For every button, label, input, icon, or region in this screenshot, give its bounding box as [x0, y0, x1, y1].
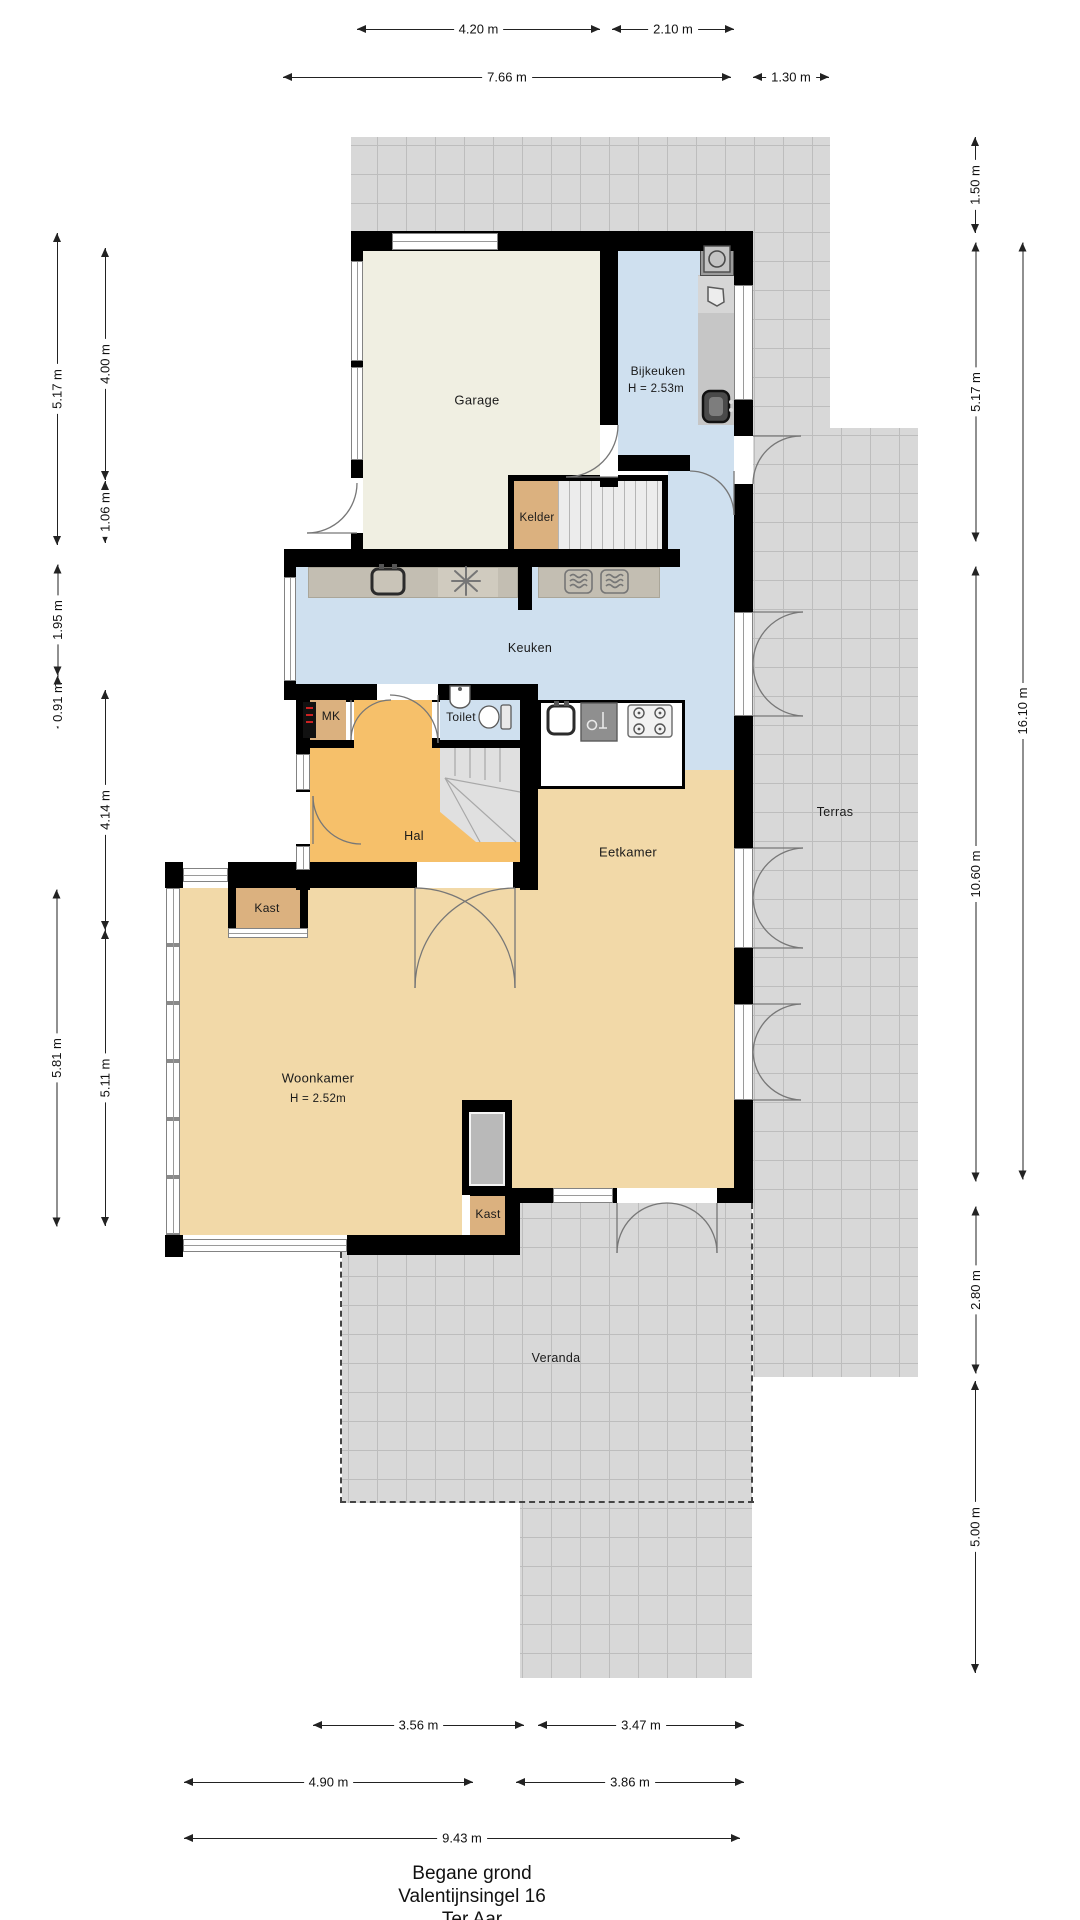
garden-tiles-bottom	[520, 1503, 752, 1678]
room-eetkamer	[538, 770, 734, 1188]
dim-left-5-17: 5.17 m	[49, 233, 65, 545]
bijkeuken-window-right	[734, 285, 753, 400]
wall-corner-topleft	[165, 862, 183, 888]
keuken-window-left	[284, 577, 296, 681]
veranda-door-opening	[617, 1188, 717, 1203]
dim-top-7-66: 7.66 m	[283, 69, 731, 85]
dim-bottom-4-90: 4.90 m	[184, 1774, 473, 1790]
room-label-eetkamer: Eetkamer	[599, 845, 657, 860]
fireplace-insert	[469, 1112, 505, 1186]
room-label-hal: Hal	[404, 829, 424, 843]
garage-window-top	[392, 233, 498, 250]
woonkamer-window-left	[166, 888, 180, 1235]
plan-title-address: Valentijnsingel 16	[262, 1885, 682, 1908]
hal-window-left-1	[296, 754, 310, 790]
room-label-kast-hal: Kast	[254, 901, 279, 915]
room-keuken-passage	[668, 455, 734, 698]
room-label-terras: Terras	[817, 805, 854, 819]
dim-left-0-91: 0.91 m	[50, 676, 66, 729]
dim-right-2-80: 2.80 m	[968, 1207, 984, 1374]
room-eetkamer-strip	[520, 890, 538, 1188]
room-note-woonkamer-height: H = 2.52m	[290, 1093, 346, 1105]
garage-bijkeuken-door-opening	[600, 425, 618, 477]
dim-left-5-11: 5.11 m	[97, 930, 113, 1226]
mk-door-opening	[346, 702, 354, 740]
kast-louvre-window	[228, 928, 308, 938]
room-label-mk: MK	[322, 709, 341, 723]
wall-bijkeuken-bottom	[618, 455, 690, 471]
hal-woonkamer-door-opening	[417, 862, 513, 888]
room-label-bijkeuken: Bijkeuken	[631, 364, 686, 378]
room-label-veranda: Veranda	[532, 1351, 581, 1365]
veranda-dashed-border-right	[751, 1203, 755, 1503]
veranda-dashed-border-bottom	[340, 1501, 754, 1505]
veranda-tiles-left	[342, 1252, 520, 1503]
dim-right-5-17: 5.17 m	[968, 243, 984, 542]
room-label-kast-woonkamer: Kast	[475, 1207, 500, 1221]
garage-window-left-1	[351, 261, 363, 361]
terras-door-opening-3	[734, 1004, 753, 1100]
bijkeuken-counter-light	[698, 276, 734, 313]
wall-toilet-bottom	[432, 740, 528, 748]
plan-title: Begane grond Valentijnsingel 16 Ter Aar	[262, 1862, 682, 1920]
terrace-tiles-top	[351, 137, 830, 233]
dim-right-1-50: 1.50 m	[967, 137, 983, 233]
room-label-garage: Garage	[454, 393, 499, 408]
kast-woonkamer-door-opening	[462, 1195, 470, 1235]
room-label-woonkamer: Woonkamer	[282, 1071, 355, 1086]
eetkamer-window-bottom	[553, 1188, 613, 1203]
terrace-tiles-right-narrow	[753, 233, 830, 428]
wall-hal-eetkamer	[520, 684, 538, 890]
room-label-toilet: Toilet	[446, 710, 476, 724]
dim-bottom-3-47: 3.47 m	[538, 1717, 744, 1733]
dim-right-16-10: 16.10 m	[1015, 243, 1031, 1180]
wall-garage-bottom	[284, 549, 680, 567]
veranda-dashed-border-left	[340, 1252, 344, 1503]
kelder-stairs	[558, 481, 662, 555]
wall-step-vertical	[505, 1188, 520, 1255]
plan-title-city: Ter Aar	[262, 1908, 682, 1920]
back-door-opening	[734, 436, 753, 484]
dim-left-1-06: 1.06 m	[97, 481, 113, 543]
toilet-door-opening	[432, 702, 440, 738]
garage-side-door-swing	[307, 483, 357, 533]
plan-title-floor: Begane grond	[262, 1862, 682, 1885]
front-door-opening	[296, 792, 310, 844]
room-note-bijkeuken-height: H = 2.53m	[628, 383, 684, 395]
terras-door-opening-2	[734, 848, 753, 948]
kitchen-counter-light-section	[438, 568, 498, 597]
kitchen-counter-right	[538, 567, 660, 598]
terras-door-opening-1	[734, 612, 753, 716]
dim-top-1-30: 1.30 m	[753, 69, 829, 85]
dim-right-5-00: 5.00 m	[967, 1381, 983, 1673]
dim-left-5-81: 5.81 m	[49, 890, 65, 1227]
wall-mk-bottom	[296, 740, 354, 748]
room-hal-upper	[354, 700, 440, 748]
hal-window-left-2	[296, 846, 310, 870]
kitchen-island	[538, 700, 685, 789]
wall-counter-stub	[518, 555, 532, 610]
garage-side-door-opening	[351, 478, 363, 533]
floorplan-sheet: Garage Bijkeuken H = 2.53m Kelder Keuken…	[0, 0, 1080, 1920]
dim-left-1-95: 1.95 m	[50, 565, 66, 676]
terrace-tiles-right-wide	[753, 428, 918, 1377]
dim-top-2-10: 2.10 m	[612, 21, 734, 37]
wall-corner-bottomleft	[165, 1235, 183, 1257]
dim-right-10-60: 10.60 m	[968, 567, 984, 1182]
window-left-of-kast	[183, 868, 228, 882]
woonkamer-window-bottom	[183, 1239, 347, 1252]
dim-bottom-9-43: 9.43 m	[184, 1830, 740, 1846]
wall-woonkamer-bottom	[347, 1235, 520, 1255]
dim-left-4-00: 4.00 m	[97, 248, 113, 480]
garage-window-left-2	[351, 367, 363, 460]
room-label-keuken: Keuken	[508, 641, 552, 655]
dim-bottom-3-56: 3.56 m	[313, 1717, 524, 1733]
room-label-kelder: Kelder	[519, 512, 554, 524]
dim-bottom-3-86: 3.86 m	[516, 1774, 744, 1790]
dim-top-4-20: 4.20 m	[357, 21, 600, 37]
dim-left-4-14: 4.14 m	[97, 690, 113, 930]
